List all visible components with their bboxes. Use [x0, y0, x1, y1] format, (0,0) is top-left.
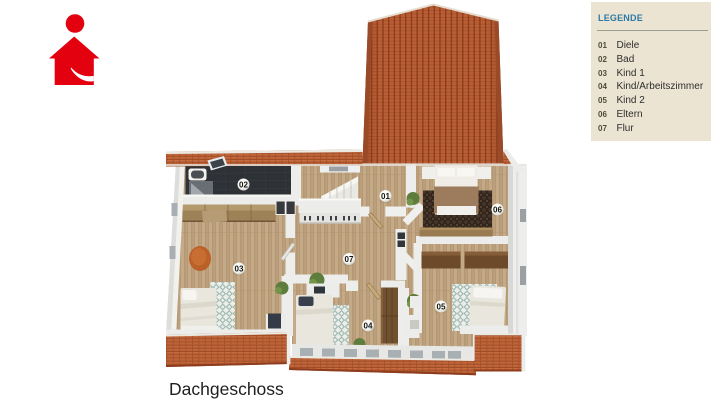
svg-text:07: 07 — [345, 255, 354, 264]
svg-text:05: 05 — [437, 303, 446, 312]
svg-text:06: 06 — [493, 206, 502, 215]
svg-text:04: 04 — [364, 322, 373, 331]
svg-text:02: 02 — [239, 181, 248, 190]
svg-text:01: 01 — [381, 192, 390, 201]
svg-text:03: 03 — [235, 265, 244, 274]
